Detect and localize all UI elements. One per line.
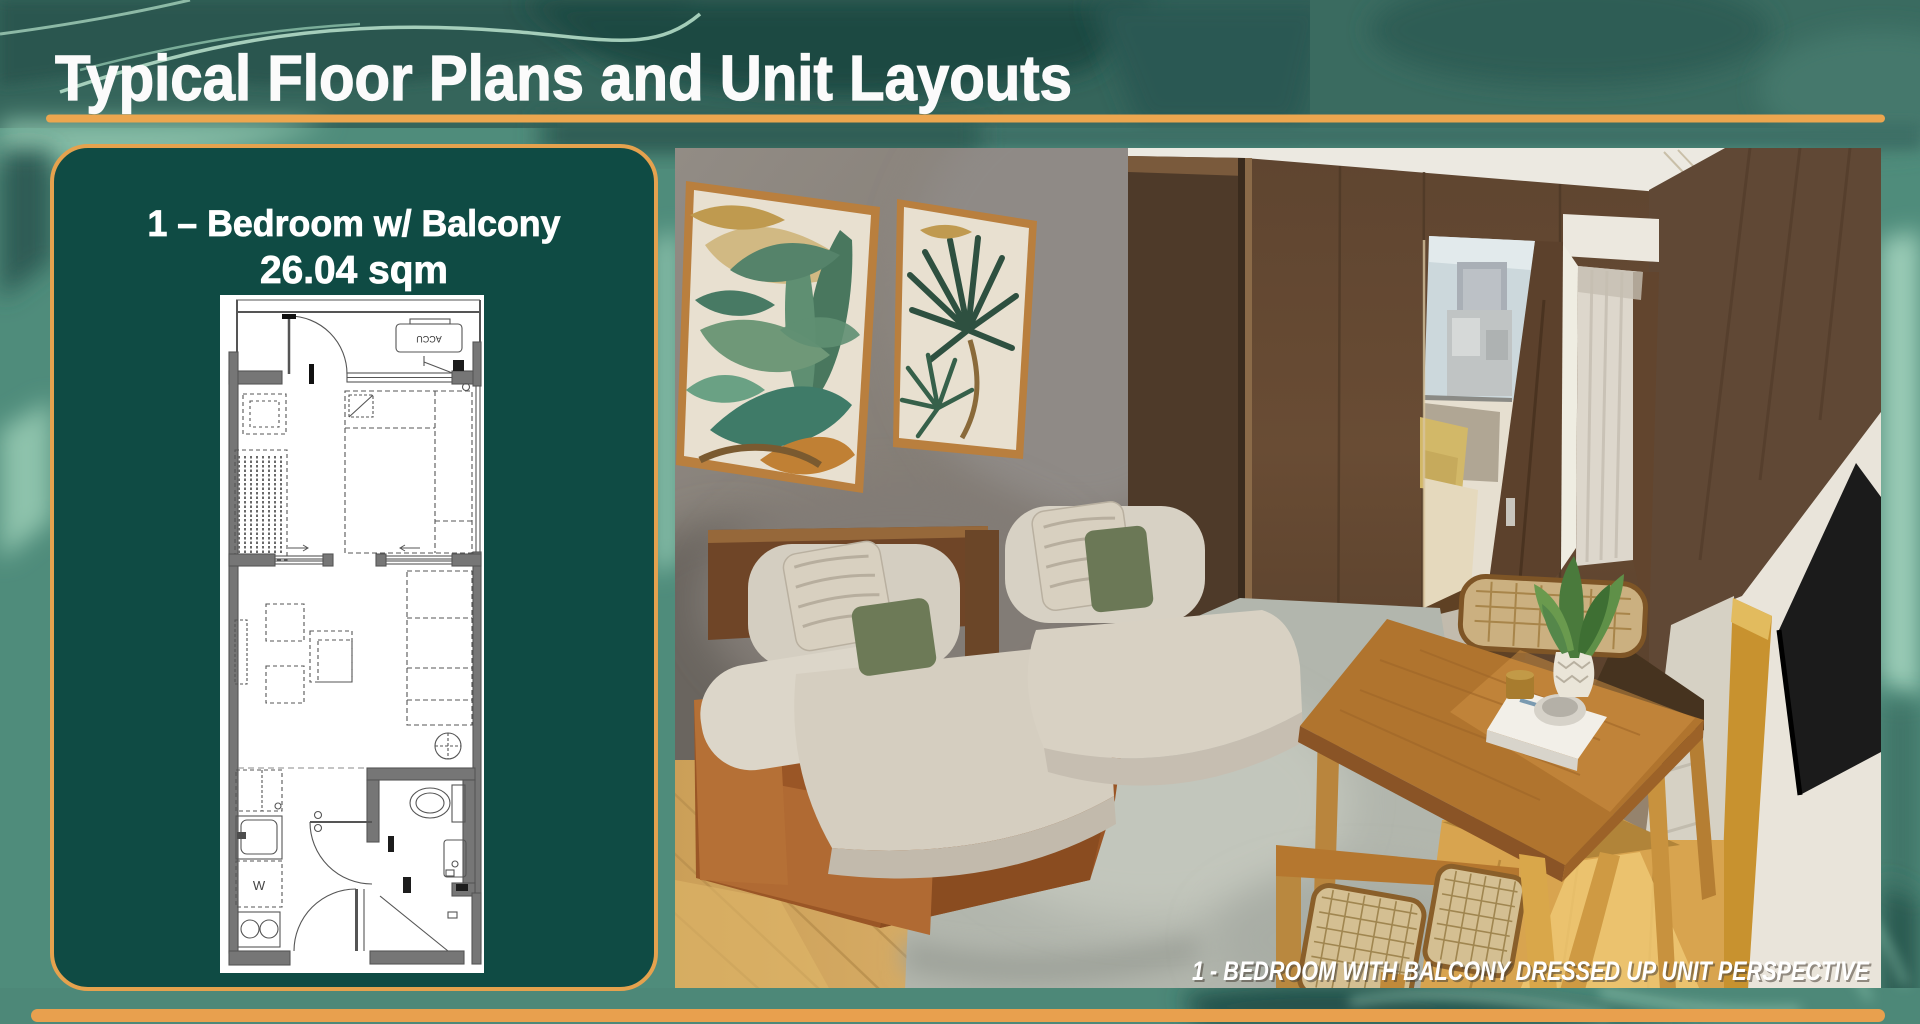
svg-text:ACCU: ACCU [416,334,442,344]
svg-text:26.04 sqm: 26.04 sqm [260,249,448,292]
svg-text:1 – Bedroom w/ Balcony: 1 – Bedroom w/ Balcony [148,203,561,244]
svg-text:Typical Floor Plans and Unit L: Typical Floor Plans and Unit Layouts [55,42,1072,114]
svg-text:1 - BEDROOM WITH BALCONY DRESS: 1 - BEDROOM WITH BALCONY DRESSED UP UNIT… [1192,956,1870,986]
svg-text:W: W [253,878,266,893]
